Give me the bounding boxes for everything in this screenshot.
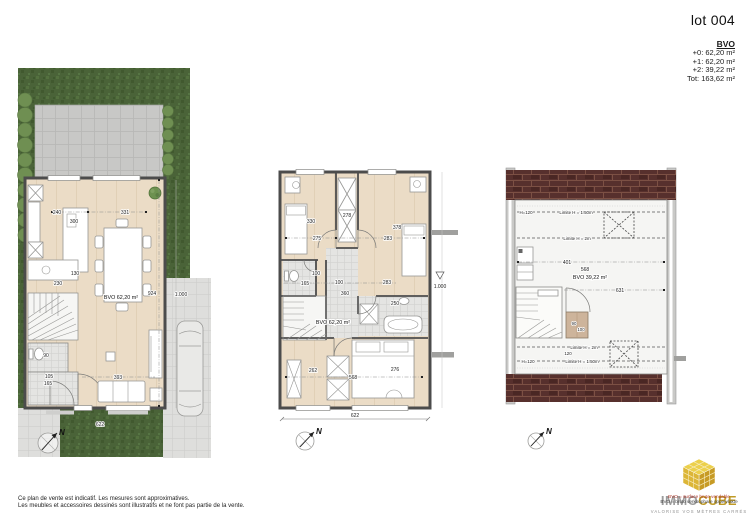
dim-label: 165 xyxy=(301,281,310,287)
limit-label: Limite H = 2m xyxy=(570,345,598,350)
dim-label: 330 xyxy=(307,219,316,225)
dim-label: 100 xyxy=(335,280,344,286)
dim-label: 283 xyxy=(383,280,392,286)
side-table xyxy=(150,388,162,401)
attic-plan: H=120 Limite H = 1.50m Limite H = 2m 401… xyxy=(504,162,694,467)
limit-label: Limite H = 1.50m xyxy=(565,359,599,364)
window xyxy=(368,170,396,175)
terrace-step xyxy=(108,411,148,415)
bvo-row-total: Tot: 163,62 m² xyxy=(687,75,735,84)
plan-sheet: lot 004 BVO +0: 62,20 m² +1: 62,20 m² +2… xyxy=(0,0,750,531)
wc-toilet xyxy=(285,271,289,281)
stairs xyxy=(516,287,562,338)
bvo-legend: BVO = surface brute vendable BVO = bruto… xyxy=(649,494,749,504)
terrace xyxy=(35,105,163,178)
agency-logo: IMMOCUBE BVO = surface brute vendable BV… xyxy=(649,457,749,514)
dim-label: 360 xyxy=(341,291,350,297)
dim-label: 275 xyxy=(313,236,322,242)
area-label: BVO 39,22 m² xyxy=(573,275,607,281)
dim-label: 120 xyxy=(564,351,572,356)
dim-label: 276 xyxy=(391,367,400,373)
dim-label: 568 xyxy=(581,267,590,273)
disclaimer-line-1: Ce plan de vente est indicatif. Les mesu… xyxy=(18,496,244,503)
canopy-bar xyxy=(674,356,686,361)
dim-label: 100 xyxy=(577,327,585,332)
north-label: N xyxy=(546,427,552,436)
dim-label: 300 xyxy=(70,219,79,225)
kitchen-counter xyxy=(28,202,40,242)
dim-label: 100 xyxy=(312,271,321,277)
roof-brick-top xyxy=(506,170,676,200)
level-label: 1.000 xyxy=(175,292,188,298)
dim-label: 240 xyxy=(53,210,62,216)
entry-step xyxy=(46,411,74,415)
limit-label: Limite H = 2m xyxy=(563,236,591,241)
level-label: 1.000 xyxy=(434,284,447,290)
window xyxy=(296,170,324,175)
dim-label: 105 xyxy=(45,374,54,380)
level-marker xyxy=(436,272,444,279)
title-block: lot 004 BVO +0: 62,20 m² +1: 62,20 m² +2… xyxy=(687,12,735,83)
height-label: H=120 xyxy=(519,210,533,215)
dim-label: 331 xyxy=(121,210,130,216)
window xyxy=(296,406,330,411)
dim-label: 165 xyxy=(44,381,53,387)
dim-label: 568 xyxy=(349,375,358,381)
dim-label: 631 xyxy=(616,288,625,294)
side-wall-right-core xyxy=(670,170,673,402)
first-floor-svg: 330 275 278 378 283 100 165 100 360 283 … xyxy=(274,164,484,464)
north-label: N xyxy=(316,427,322,436)
dim-label: 250 xyxy=(391,301,400,307)
kitchen-counter-bottom xyxy=(28,260,78,280)
window xyxy=(106,406,150,411)
car xyxy=(177,321,203,416)
dim-label: 622 xyxy=(96,422,105,428)
dim-label: 622 xyxy=(351,413,360,419)
sofa xyxy=(98,381,145,402)
north-arrow: N xyxy=(528,427,552,449)
dim-label: 90 xyxy=(43,353,49,359)
dim-label: 230 xyxy=(54,281,63,287)
roof-brick-bottom xyxy=(506,374,662,402)
canopy-bar xyxy=(432,352,454,358)
lot-title: lot 004 xyxy=(687,12,735,28)
stairs xyxy=(28,293,78,340)
dim-label: 924 xyxy=(148,291,157,297)
disclaimer-line-2: Les meubles et accessoires dessinés sont… xyxy=(18,503,244,510)
dim-label: 378 xyxy=(393,225,402,231)
area-label: BVO 62,20 m² xyxy=(316,320,350,326)
window xyxy=(93,176,140,181)
north-label: N xyxy=(59,428,65,437)
brand-tagline: VALORISE VOS MÈTRES CARRÉS xyxy=(649,509,749,514)
height-label: H=120 xyxy=(521,359,535,364)
stair-floor xyxy=(283,296,326,340)
ground-floor-plan: 240 300 331 130 230 924 BVO 62,20 m² 393… xyxy=(16,66,216,467)
north-arrow: N xyxy=(296,427,322,450)
dim-label: 393 xyxy=(114,375,123,381)
legend-line-2: BVO = bruto verkoopbare oppervlakte xyxy=(649,499,749,504)
window xyxy=(74,406,92,411)
ground-floor-svg: 240 300 331 130 230 924 BVO 62,20 m² 393… xyxy=(16,66,216,462)
disclaimer: Ce plan de vente est indicatif. Les mesu… xyxy=(18,496,244,510)
wardrobes-center xyxy=(338,178,356,242)
limit-label: Limite H = 1.50m xyxy=(559,210,593,215)
cube-logo-icon xyxy=(679,457,719,493)
area-label: BVO 62,20 m² xyxy=(104,295,138,301)
pouf xyxy=(106,352,115,361)
first-floor-plan: 330 275 278 378 283 100 165 100 360 283 … xyxy=(274,164,484,469)
dim-label: 278 xyxy=(343,213,352,219)
dim-label: 90 xyxy=(572,321,577,326)
window xyxy=(48,176,80,181)
window xyxy=(352,406,408,411)
dim-label: 283 xyxy=(384,236,393,242)
dim-label: 262 xyxy=(309,368,318,374)
side-wall-left-core xyxy=(509,170,512,402)
dim-label: 130 xyxy=(71,271,80,277)
dim-label: 401 xyxy=(563,260,572,266)
attic-svg: H=120 Limite H = 1.50m Limite H = 2m 401… xyxy=(504,162,694,462)
canopy-bar xyxy=(432,230,458,235)
